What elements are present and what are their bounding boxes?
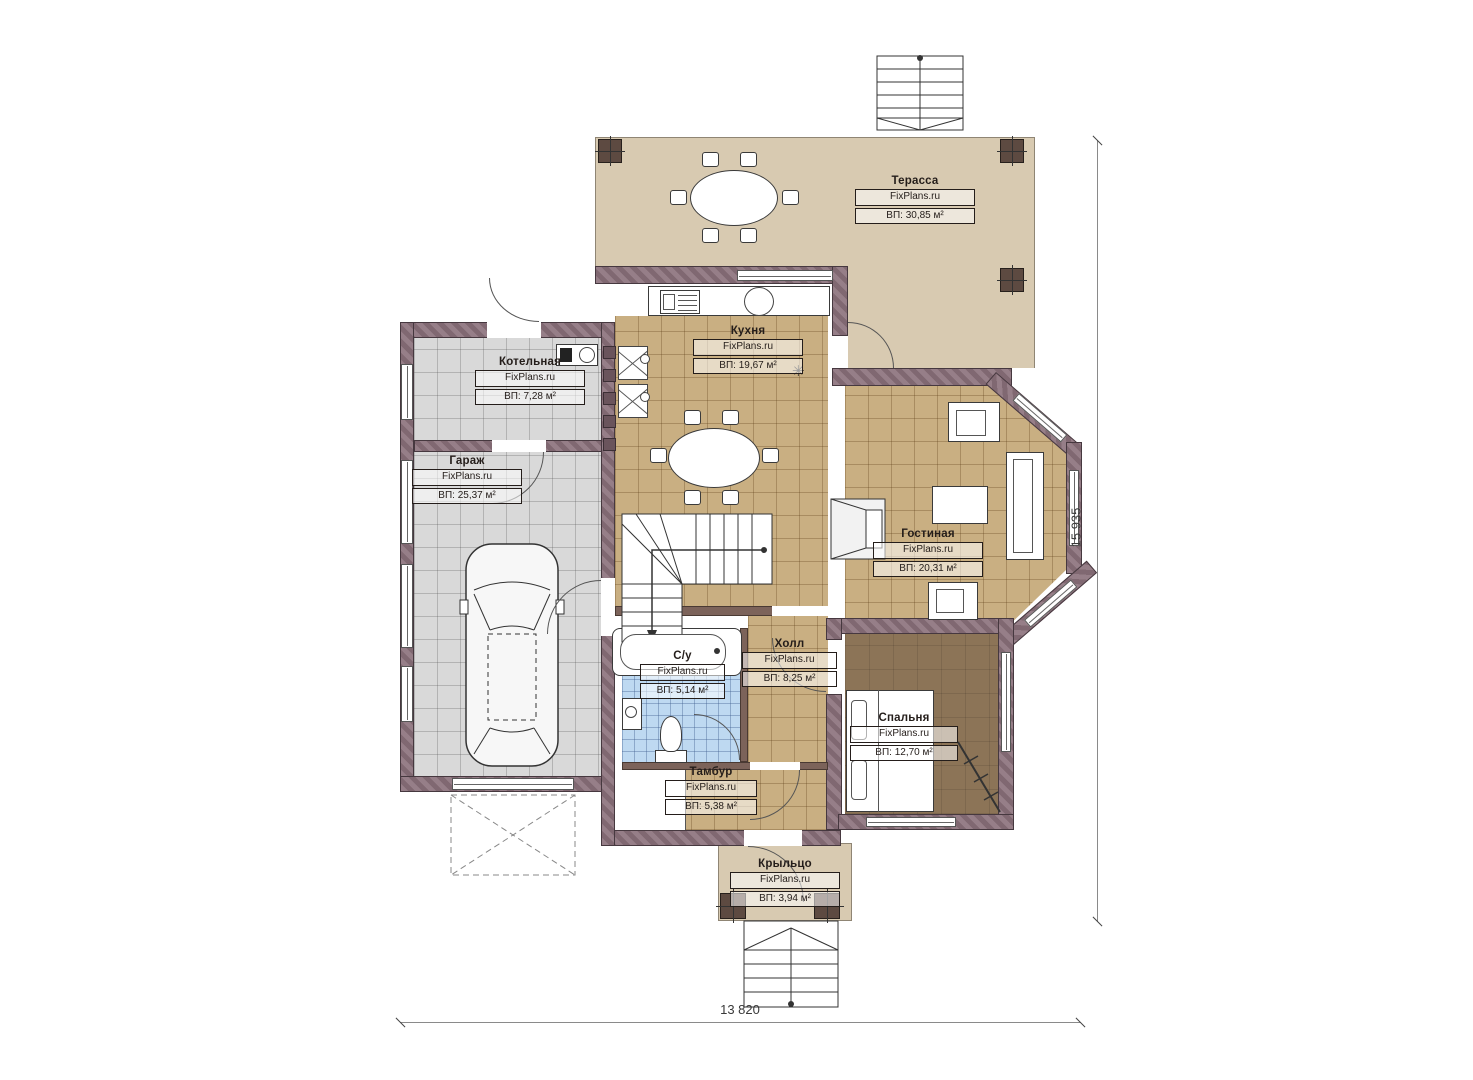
area-box: ВП: 5,14 м² [640, 683, 725, 700]
chair [740, 152, 757, 167]
wall [826, 694, 842, 830]
stove-grill-lines [678, 293, 697, 311]
brand-box: FixPlans.ru [855, 189, 975, 206]
terrace-stairs [876, 55, 964, 139]
window [401, 564, 413, 648]
terrace-table [690, 170, 778, 226]
chair [684, 410, 701, 425]
brand-box: FixPlans.ru [412, 469, 522, 486]
room-label-living: Гостиная FixPlans.ru ВП: 20,31 м² [873, 528, 983, 577]
window [1001, 652, 1011, 752]
door-opening [487, 322, 541, 338]
dining-table [668, 428, 760, 488]
room-label-boiler: Котельная FixPlans.ru ВП: 7,28 м² [475, 356, 585, 405]
brand-box: FixPlans.ru [693, 339, 803, 356]
chair [740, 228, 757, 243]
door-opening [492, 440, 546, 452]
room-label-terrace: Терасса FixPlans.ru ВП: 30,85 м² [855, 175, 975, 224]
dimension-label-right: 15 935 [1068, 508, 1083, 548]
area-box: ВП: 12,70 м² [850, 745, 958, 762]
window [401, 666, 413, 722]
room-name: Крыльцо [730, 858, 840, 870]
room-label-hall: Холл FixPlans.ru ВП: 8,25 м² [742, 638, 837, 687]
chair [722, 490, 739, 505]
room-name: Гараж [412, 455, 522, 467]
area-box: ВП: 8,25 м² [742, 671, 837, 688]
area-box: ВП: 30,85 м² [855, 208, 975, 225]
area-box: ВП: 7,28 м² [475, 389, 585, 406]
chair [650, 448, 667, 463]
section-mark [952, 738, 1006, 818]
room-name: Кухня [693, 325, 803, 337]
room-name: С/у [640, 650, 725, 662]
car [460, 538, 564, 772]
kitchen-sink-icon [744, 287, 774, 316]
tap-icon [640, 392, 650, 402]
armchair-cushion [956, 410, 986, 436]
dimension-label-bottom: 13 820 [700, 1002, 780, 1017]
chair [702, 228, 719, 243]
coffee-table [932, 486, 988, 524]
sofa-cushion [1013, 459, 1033, 553]
door-arc [489, 278, 539, 322]
interior-stairs [620, 512, 776, 644]
column [1000, 139, 1024, 163]
floor-plan-page: { "plan": { "brand": "FixPlans.ru", "roo… [0, 0, 1473, 1080]
area-box: ВП: 20,31 м² [873, 561, 983, 578]
cabinet-square [603, 415, 616, 428]
brand-box: FixPlans.ru [730, 872, 840, 889]
door-opening [601, 578, 615, 636]
room-name: Котельная [475, 356, 585, 368]
room-label-vestibule: Тамбур FixPlans.ru ВП: 5,38 м² [665, 766, 757, 815]
wall [601, 830, 841, 846]
brand-box: FixPlans.ru [742, 652, 837, 669]
area-box: ВП: 5,38 м² [665, 799, 757, 816]
window [737, 270, 833, 281]
cabinet-square [603, 346, 616, 359]
column [1000, 268, 1024, 292]
chair [762, 448, 779, 463]
brand-box: FixPlans.ru [850, 726, 958, 743]
cabinet-square [603, 369, 616, 382]
room-label-bathroom: С/у FixPlans.ru ВП: 5,14 м² [640, 650, 725, 699]
brand-box: FixPlans.ru [665, 780, 757, 797]
door-opening [750, 762, 800, 770]
area-box: ВП: 3,94 м² [730, 891, 840, 908]
dimension-line-bottom [400, 1022, 1081, 1023]
door-opening [744, 830, 802, 846]
room-name: Терасса [855, 175, 975, 187]
pillow [851, 760, 867, 800]
wall [832, 266, 848, 336]
chair [702, 152, 719, 167]
room-label-bedroom: Спальня FixPlans.ru ВП: 12,70 м² [850, 712, 958, 761]
column [598, 139, 622, 163]
room-name: Гостиная [873, 528, 983, 540]
door-opening [772, 606, 828, 616]
cabinet-square [603, 392, 616, 405]
room-label-garage: Гараж FixPlans.ru ВП: 25,37 м² [412, 455, 522, 504]
room-name: Спальня [850, 712, 958, 724]
chair [670, 190, 687, 205]
room-label-kitchen: Кухня FixPlans.ru ВП: 19,67 м² [693, 325, 803, 374]
dimension-line-right [1097, 140, 1098, 922]
brand-box: FixPlans.ru [475, 370, 585, 387]
armchair-cushion [936, 589, 964, 613]
room-name: Холл [742, 638, 837, 650]
cabinet-square [603, 438, 616, 451]
stove-panel [663, 294, 675, 310]
room-name: Тамбур [665, 766, 757, 778]
chair [782, 190, 799, 205]
room-label-porch: Крыльцо FixPlans.ru ВП: 3,94 м² [730, 858, 840, 907]
wall [838, 618, 1014, 634]
porch-stairs [743, 920, 839, 1008]
brand-box: FixPlans.ru [873, 542, 983, 559]
chair [722, 410, 739, 425]
garage-door [452, 778, 574, 790]
wall [826, 618, 842, 640]
area-box: ВП: 19,67 м² [693, 358, 803, 375]
brand-box: FixPlans.ru [640, 664, 725, 681]
window [866, 817, 956, 827]
window [401, 364, 413, 420]
toilet-bowl [660, 716, 682, 752]
washbasin-bowl [625, 706, 637, 718]
tap-icon [640, 354, 650, 364]
chair [684, 490, 701, 505]
garage-apron [450, 794, 576, 876]
area-box: ВП: 25,37 м² [412, 488, 522, 505]
